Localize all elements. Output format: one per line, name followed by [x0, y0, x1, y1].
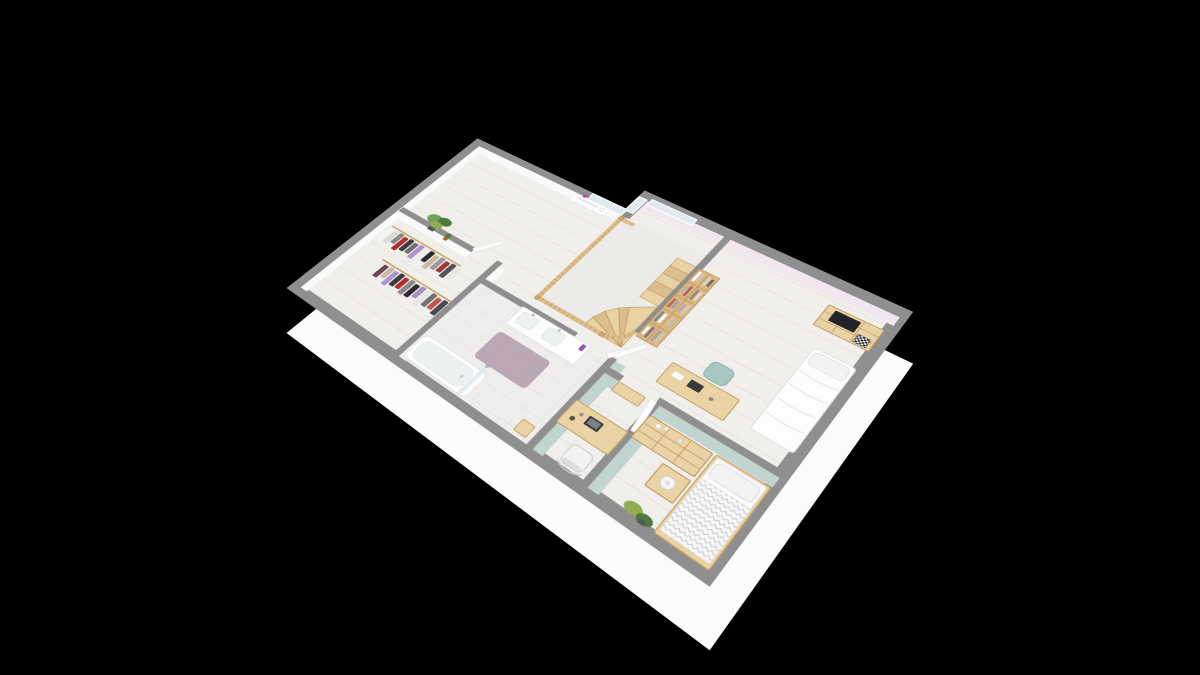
floorplan [295, 128, 903, 575]
render-canvas [0, 0, 1200, 675]
